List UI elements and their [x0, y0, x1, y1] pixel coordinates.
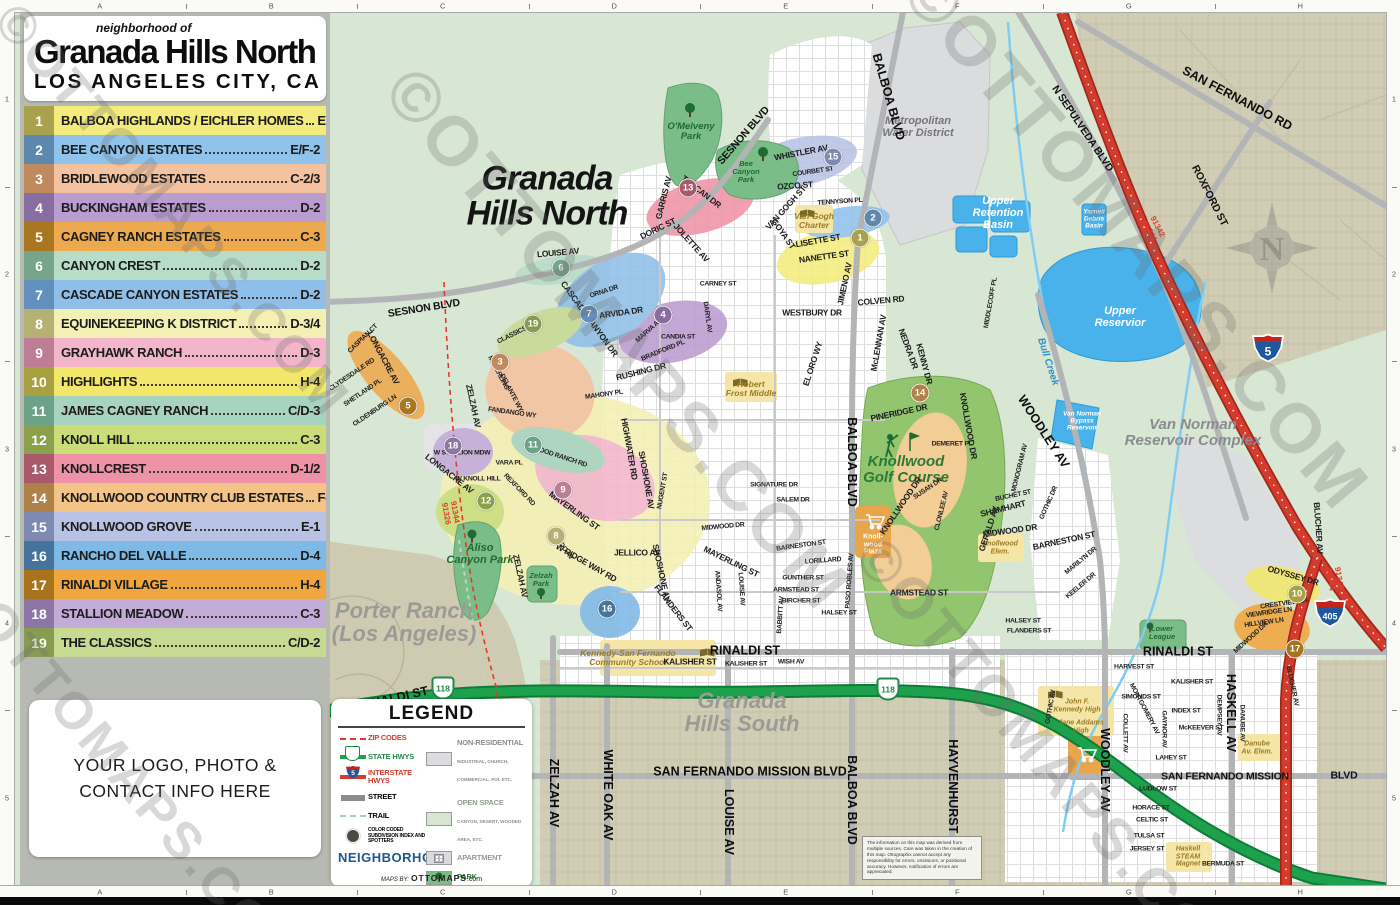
page-subtitle: LOS ANGELES CITY, CA [34, 70, 318, 94]
dotted-leader [211, 413, 285, 415]
legend-item-non-residential: NON-RESIDENTIALINDUSTRIAL, CHURCH, COMME… [426, 732, 525, 786]
index-number: 8 [24, 309, 54, 338]
index-entry: THE CLASSICSC/D-2 [54, 635, 326, 650]
dotted-leader [209, 181, 287, 183]
index-row: 10HIGHLIGHTSH-4 [24, 367, 326, 396]
index-label: GRAYHAWK RANCH [61, 345, 182, 360]
legend-title: LEGEND [338, 703, 525, 728]
logo-placeholder: YOUR LOGO, PHOTO & CONTACT INFO HERE [29, 700, 321, 857]
dotted-leader [306, 123, 314, 125]
index-number: 1 [24, 106, 54, 135]
index-entry: STALLION MEADOWC-3 [54, 606, 326, 621]
map-sheet: N Granada Hills NorthPorter Ranch (Los A… [0, 0, 1400, 905]
grid-row-label: 3 [5, 444, 9, 453]
grid-col-label: H [1298, 2, 1303, 11]
index-number: 7 [24, 280, 54, 309]
index-label: RANCHO DEL VALLE [61, 548, 186, 563]
grid-row-label: 1 [1392, 95, 1396, 104]
ruler-tick [186, 4, 187, 9]
index-label: JAMES CAGNEY RANCH [61, 403, 208, 418]
street-icon [338, 791, 368, 804]
ruler-tick [357, 4, 358, 9]
dotted-leader [185, 355, 297, 357]
index-grid-ref: C-2/3 [290, 171, 320, 186]
index-number: 17 [24, 570, 54, 599]
index-label: THE CLASSICS [61, 635, 152, 650]
page-title: Granada Hills North [34, 35, 318, 68]
index-number: 11 [24, 396, 54, 425]
index-number: 15 [24, 512, 54, 541]
dotted-leader [205, 152, 287, 154]
grid-col-label: A [97, 2, 102, 11]
non-residential-swatch [426, 752, 452, 766]
ruler-left: 12345 [0, 12, 15, 885]
ruler-tick [186, 890, 187, 895]
grid-col-label: G [1126, 888, 1132, 897]
index-row: 9GRAYHAWK RANCHD-3 [24, 338, 326, 367]
ruler-tick [1392, 361, 1397, 362]
index-label: CAGNEY RANCH ESTATES [61, 229, 221, 244]
index-entry: BUCKINGHAM ESTATESD-2 [54, 200, 326, 215]
index-label: HIGHLIGHTS [61, 374, 137, 389]
index-number: 12 [24, 425, 54, 454]
index-entry: KNOLLWOOD COUNTRY CLUB ESTATESF-3 [54, 490, 326, 505]
index-label: CANYON CREST [61, 258, 160, 273]
grid-row-label: 1 [5, 95, 9, 104]
index-entry: HIGHLIGHTSH-4 [54, 374, 326, 389]
index-entry: RINALDI VILLAGEH-4 [54, 577, 326, 592]
index-row: 11JAMES CAGNEY RANCHC/D-3 [24, 396, 326, 425]
subdivision-index-list: 1BALBOA HIGHLANDS / EICHLER HOMESE-22BEE… [24, 106, 326, 657]
ruler-tick [700, 4, 701, 9]
index-label: RINALDI VILLAGE [61, 577, 168, 592]
dotted-leader [137, 442, 297, 444]
trail-icon [338, 810, 368, 823]
grid-col-label: G [1126, 2, 1132, 11]
ruler-tick [1043, 4, 1044, 9]
index-row: 16RANCHO DEL VALLED-4 [24, 541, 326, 570]
index-entry: CANYON CRESTD-2 [54, 258, 326, 273]
index-row: 3BRIDLEWOOD ESTATESC-2/3 [24, 164, 326, 193]
ruler-tick [5, 361, 10, 362]
logo-line-1: YOUR LOGO, PHOTO & [73, 755, 276, 775]
legend-item-zip-codes: ZIP CODES [338, 732, 426, 745]
index-grid-ref: H-4 [300, 577, 320, 592]
index-grid-ref: C-3 [300, 432, 320, 447]
index-entry: CAGNEY RANCH ESTATESC-3 [54, 229, 326, 244]
ruler-tick [1392, 187, 1397, 188]
dotted-leader [224, 239, 298, 241]
index-number: 19 [24, 628, 54, 657]
index-row: 4BUCKINGHAM ESTATESD-2 [24, 193, 326, 222]
ruler-tick [1392, 536, 1397, 537]
ruler-tick [5, 710, 10, 711]
legend-item-state-hwys: STATE HWYS [338, 751, 426, 764]
grid-col-label: C [440, 888, 445, 897]
index-entry: BALBOA HIGHLANDS / EICHLER HOMESE-2 [54, 113, 326, 128]
dotted-leader [140, 384, 297, 386]
spotter-icon [338, 830, 368, 843]
index-entry: JAMES CAGNEY RANCHC/D-3 [54, 403, 326, 418]
ruler-tick [1392, 710, 1397, 711]
grid-col-label: F [955, 888, 960, 897]
index-grid-ref: D-3/4 [290, 316, 320, 331]
zip-dash-icon [338, 732, 368, 745]
index-row: 1BALBOA HIGHLANDS / EICHLER HOMESE-2 [24, 106, 326, 135]
ruler-tick [1215, 4, 1216, 9]
index-row: 19THE CLASSICSC/D-2 [24, 628, 326, 657]
dotted-leader [171, 587, 298, 589]
ruler-tick [1215, 890, 1216, 895]
index-row: 6CANYON CRESTD-2 [24, 251, 326, 280]
index-grid-ref: C/D-2 [288, 635, 320, 650]
index-number: 9 [24, 338, 54, 367]
index-entry: KNOLL HILLC-3 [54, 432, 326, 447]
grid-col-label: D [612, 888, 617, 897]
index-entry: CASCADE CANYON ESTATESD-2 [54, 287, 326, 302]
index-number: 6 [24, 251, 54, 280]
index-panel: neighborhood of Granada Hills North LOS … [20, 12, 330, 885]
ruler-tick [1043, 890, 1044, 895]
index-row: 13KNOLLCRESTD-1/2 [24, 454, 326, 483]
index-row: 12KNOLL HILLC-3 [24, 425, 326, 454]
index-number: 10 [24, 367, 54, 396]
index-entry: KNOLLCRESTD-1/2 [54, 461, 326, 476]
grid-col-label: C [440, 2, 445, 11]
dotted-leader [195, 529, 298, 531]
index-row: 15KNOLLWOOD GROVEE-1 [24, 512, 326, 541]
legend-footer: MAPS BY: OTTOMAPS.com [331, 873, 532, 883]
ruler-tick [872, 4, 873, 9]
index-number: 2 [24, 135, 54, 164]
grid-row-label: 2 [1392, 269, 1396, 278]
dotted-leader [186, 616, 297, 618]
grid-col-label: F [955, 2, 960, 11]
title-card: neighborhood of Granada Hills North LOS … [24, 16, 326, 101]
index-row: 14KNOLLWOOD COUNTRY CLUB ESTATESF-3 [24, 483, 326, 512]
dotted-leader [149, 471, 287, 473]
legend-item-spotters: COLOR CODED SUBDIVISION INDEX AND SPOTTE… [338, 828, 426, 845]
grid-col-label: E [783, 888, 788, 897]
index-number: 14 [24, 483, 54, 512]
index-grid-ref: E-1 [301, 519, 320, 534]
ruler-tick [5, 536, 10, 537]
legend-item-street: STREET [338, 791, 426, 804]
grid-row-label: 4 [5, 619, 9, 628]
apartment-icon [426, 851, 452, 865]
state-highway-icon [338, 751, 368, 764]
index-label: STALLION MEADOW [61, 606, 183, 621]
grid-row-label: 4 [1392, 619, 1396, 628]
index-label: EQUINEKEEPING K DISTRICT [61, 316, 236, 331]
index-entry: BEE CANYON ESTATESE/F-2 [54, 142, 326, 157]
dotted-leader [155, 645, 286, 647]
index-grid-ref: D-2 [300, 258, 320, 273]
index-label: CASCADE CANYON ESTATES [61, 287, 238, 302]
ruler-tick [529, 890, 530, 895]
ruler-tick [5, 187, 10, 188]
index-label: BUCKINGHAM ESTATES [61, 200, 206, 215]
index-label: KNOLLWOOD COUNTRY CLUB ESTATES [61, 490, 303, 505]
dotted-leader [189, 558, 297, 560]
grid-col-label: B [269, 888, 274, 897]
legend-item-neighborhood: NEIGHBORHOOD [338, 850, 426, 865]
grid-col-label: A [97, 888, 102, 897]
index-grid-ref: D-2 [300, 200, 320, 215]
ruler-top: ABCDEFGH [0, 0, 1400, 13]
open-space-swatch [426, 812, 452, 826]
index-grid-ref: E-2 [317, 113, 326, 128]
bottom-bar [0, 897, 1400, 905]
index-entry: RANCHO DEL VALLED-4 [54, 548, 326, 563]
dotted-leader [163, 268, 297, 270]
grid-col-label: B [269, 2, 274, 11]
grid-col-label: H [1298, 888, 1303, 897]
dotted-leader [306, 500, 314, 502]
grid-col-label: E [783, 2, 788, 11]
grid-row-label: 5 [1392, 793, 1396, 802]
index-entry: BRIDLEWOOD ESTATESC-2/3 [54, 171, 326, 186]
ruler-tick [529, 4, 530, 9]
interstate-highway-icon: 5 [338, 771, 368, 784]
legend-item-trail: TRAIL [338, 810, 426, 823]
logo-line-2: CONTACT INFO HERE [79, 781, 271, 801]
grid-row-label: 5 [5, 793, 9, 802]
index-grid-ref: D-3 [300, 345, 320, 360]
index-entry: KNOLLWOOD GROVEE-1 [54, 519, 326, 534]
index-grid-ref: E/F-2 [290, 142, 320, 157]
index-row: 17RINALDI VILLAGEH-4 [24, 570, 326, 599]
index-number: 16 [24, 541, 54, 570]
index-number: 3 [24, 164, 54, 193]
index-label: KNOLLCREST [61, 461, 146, 476]
index-number: 13 [24, 454, 54, 483]
index-grid-ref: F-3 [317, 490, 326, 505]
index-row: 7CASCADE CANYON ESTATESD-2 [24, 280, 326, 309]
index-row: 18STALLION MEADOWC-3 [24, 599, 326, 628]
grid-col-label: D [612, 2, 617, 11]
index-grid-ref: C-3 [300, 606, 320, 621]
index-label: BEE CANYON ESTATES [61, 142, 202, 157]
ruler-tick [700, 890, 701, 895]
index-row: 2BEE CANYON ESTATESE/F-2 [24, 135, 326, 164]
index-grid-ref: D-4 [300, 548, 320, 563]
legend-item-apartment: APARTMENT [426, 851, 525, 865]
index-label: KNOLL HILL [61, 432, 134, 447]
legend-item-open-space: OPEN SPACECANYON, DESERT, WOODED AREA, E… [426, 792, 525, 846]
index-entry: EQUINEKEEPING K DISTRICTD-3/4 [54, 316, 326, 331]
index-number: 18 [24, 599, 54, 628]
ruler-right: 12345 [1386, 12, 1400, 885]
ruler-tick [872, 890, 873, 895]
dotted-leader [209, 210, 298, 212]
index-row: 5CAGNEY RANCH ESTATESC-3 [24, 222, 326, 251]
index-row: 8EQUINEKEEPING K DISTRICTD-3/4 [24, 309, 326, 338]
legend-item-interstate-hwys: 5 INTERSTATE HWYS [338, 769, 426, 786]
dotted-leader [239, 326, 287, 328]
index-number: 5 [24, 222, 54, 251]
grid-row-label: 3 [1392, 444, 1396, 453]
dotted-leader [241, 297, 297, 299]
index-grid-ref: D-2 [300, 287, 320, 302]
index-label: BALBOA HIGHLANDS / EICHLER HOMES [61, 113, 303, 128]
index-label: BRIDLEWOOD ESTATES [61, 171, 206, 186]
disclaimer-text: The information on this map was derived … [862, 836, 982, 880]
legend: LEGEND ZIP CODES STATE HWYS 5 INTERSTATE… [331, 699, 532, 887]
grid-row-label: 2 [5, 269, 9, 278]
index-label: KNOLLWOOD GROVE [61, 519, 192, 534]
index-grid-ref: C/D-3 [288, 403, 320, 418]
index-number: 4 [24, 193, 54, 222]
index-grid-ref: D-1/2 [290, 461, 320, 476]
ruler-tick [357, 890, 358, 895]
index-grid-ref: H-4 [300, 374, 320, 389]
index-entry: GRAYHAWK RANCHD-3 [54, 345, 326, 360]
index-grid-ref: C-3 [300, 229, 320, 244]
